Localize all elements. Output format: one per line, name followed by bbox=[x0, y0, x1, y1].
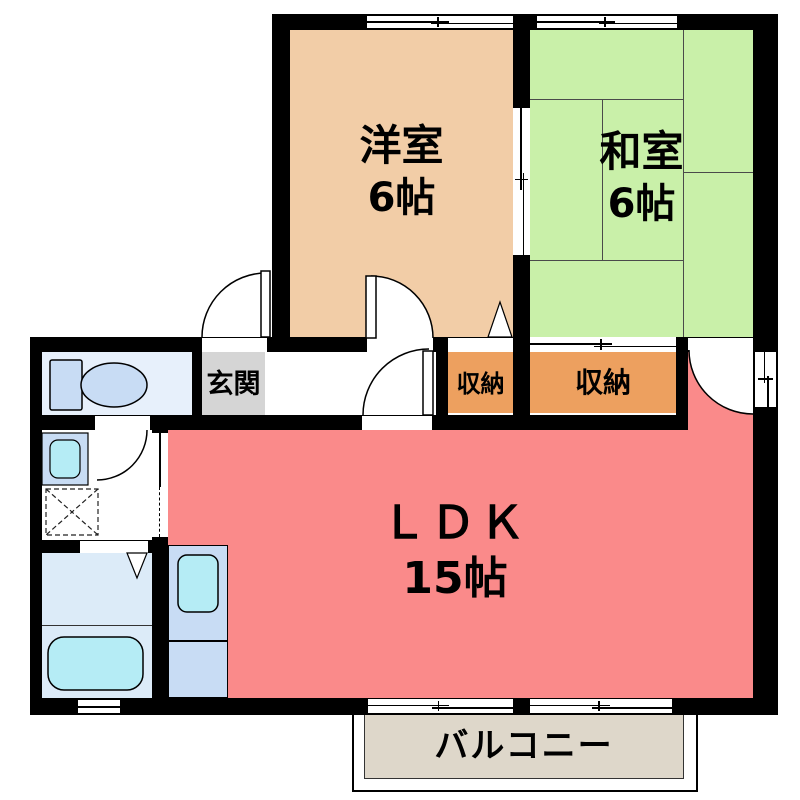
balcony-label: バルコニー bbox=[434, 725, 613, 768]
japanese-room-name: 和室 bbox=[530, 126, 753, 179]
bathroom-divider bbox=[42, 625, 152, 626]
window-ldk-balcony-right bbox=[530, 699, 672, 713]
wall-western-left bbox=[272, 14, 290, 352]
western-room-name: 洋室 bbox=[290, 120, 513, 173]
japanese-room-label: 和室 6帖 bbox=[530, 126, 753, 229]
toilet-door-opening bbox=[95, 416, 150, 430]
entrance-door-swing bbox=[202, 271, 270, 337]
wall-storage-storage bbox=[513, 337, 530, 430]
wall-storage-corridor bbox=[676, 337, 688, 430]
ldk-size: 15帖 bbox=[290, 551, 620, 606]
tatami-line bbox=[530, 99, 683, 100]
western-door-opening bbox=[367, 338, 433, 352]
sliding-track-line bbox=[159, 487, 162, 537]
ldk-name: ＬＤＫ bbox=[290, 495, 620, 551]
wall-toilet-entrance bbox=[192, 352, 202, 415]
hall-ldk-door-opening bbox=[362, 416, 432, 430]
toilet-door-swing bbox=[97, 430, 147, 480]
window-bathroom bbox=[78, 700, 120, 713]
storage-large-label: 収納 bbox=[530, 365, 676, 400]
window-ldk-balcony-left bbox=[368, 699, 513, 713]
sliding-partition-western-japanese bbox=[513, 108, 530, 255]
window-japanese-top bbox=[537, 16, 677, 28]
western-room-label: 洋室 6帖 bbox=[290, 120, 513, 223]
balcony: バルコニー bbox=[364, 714, 684, 779]
window-ldk-right bbox=[755, 352, 776, 407]
storage-small-label: 収納 bbox=[448, 369, 513, 399]
ldk-label: ＬＤＫ 15帖 bbox=[290, 495, 620, 606]
hall-ldk-door-swing bbox=[363, 349, 433, 415]
washroom-sliding-door bbox=[152, 433, 168, 487]
storage-large-sliding-door bbox=[530, 337, 676, 352]
wall-hall-storage bbox=[436, 337, 448, 430]
kitchen-counter-divider bbox=[169, 640, 227, 642]
storage-small-opening bbox=[448, 338, 513, 352]
japanese-room-size: 6帖 bbox=[530, 179, 753, 229]
kitchen-counter bbox=[168, 545, 228, 698]
wall-left bbox=[30, 337, 42, 715]
ldk-corridor bbox=[688, 350, 753, 435]
tatami-line bbox=[530, 260, 683, 261]
japanese-door-opening bbox=[688, 338, 753, 350]
western-room-size: 6帖 bbox=[290, 173, 513, 223]
floor-plan: バルコニー bbox=[0, 0, 800, 800]
toilet-room bbox=[42, 352, 192, 415]
sliding-door-line bbox=[159, 433, 161, 487]
washing-machine-icon bbox=[46, 489, 98, 535]
washbasin-icon bbox=[42, 433, 88, 485]
window-western-top bbox=[367, 16, 513, 28]
entrance-label: 玄関 bbox=[202, 368, 265, 402]
entrance-door-opening bbox=[202, 338, 267, 352]
bathroom-door-opening bbox=[80, 541, 148, 553]
washroom-sliding-track bbox=[152, 487, 168, 537]
